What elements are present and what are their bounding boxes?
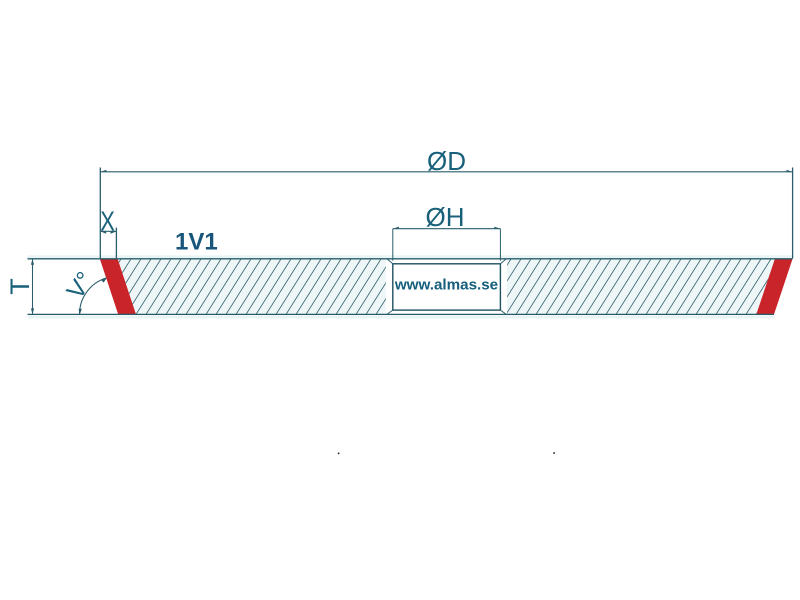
- svg-text:www.almas.se: www.almas.se: [394, 277, 498, 294]
- svg-text:T: T: [5, 278, 35, 295]
- svg-text:1V1: 1V1: [175, 229, 218, 256]
- svg-text:ØD: ØD: [427, 146, 466, 176]
- svg-text:X: X: [100, 206, 115, 237]
- svg-text:ØH: ØH: [426, 202, 465, 232]
